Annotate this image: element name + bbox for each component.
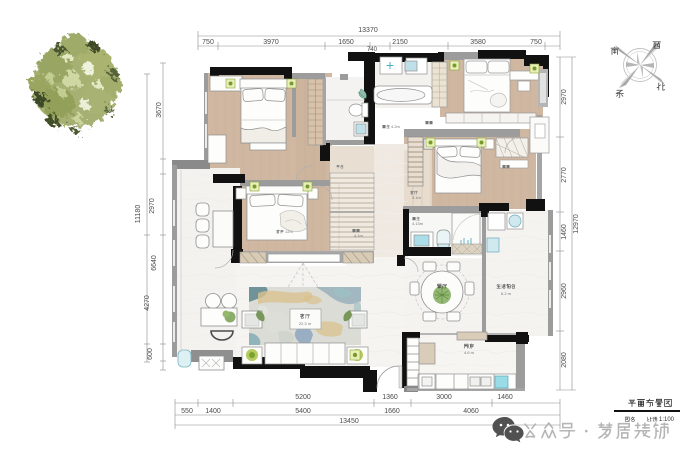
svg-text:3580: 3580 [470, 39, 486, 46]
svg-text:1460: 1460 [561, 224, 568, 240]
svg-text:3970: 3970 [263, 39, 279, 46]
svg-text:3670: 3670 [156, 102, 163, 118]
svg-text:1:100: 1:100 [659, 417, 675, 423]
svg-text:1400: 1400 [205, 408, 221, 415]
svg-text:1360: 1360 [382, 394, 398, 401]
svg-text:1460: 1460 [497, 394, 513, 401]
svg-text:13370: 13370 [358, 27, 378, 34]
svg-text:4.13m: 4.13m [412, 221, 424, 226]
svg-text:6640: 6640 [151, 255, 158, 271]
svg-text:2970: 2970 [561, 89, 568, 105]
svg-text:4270: 4270 [144, 295, 151, 311]
svg-text:2770: 2770 [561, 167, 568, 183]
svg-text:4.1m: 4.1m [354, 233, 364, 238]
svg-text:1660: 1660 [384, 408, 400, 415]
svg-text:750: 750 [530, 39, 542, 46]
svg-text:4.6 m: 4.6 m [464, 350, 475, 355]
svg-text:12m: 12m [285, 229, 293, 234]
svg-text:750: 750 [202, 39, 214, 46]
svg-text:600: 600 [147, 348, 154, 360]
svg-text:4060: 4060 [463, 408, 479, 415]
svg-text:12970: 12970 [573, 214, 580, 234]
svg-text:5400: 5400 [295, 408, 311, 415]
svg-text:2970: 2970 [149, 198, 156, 214]
svg-text:1650: 1650 [338, 39, 354, 46]
svg-text:22.3 m: 22.3 m [299, 321, 312, 326]
svg-text:550: 550 [181, 408, 193, 415]
svg-text:2150: 2150 [392, 39, 408, 46]
svg-text:2080: 2080 [561, 352, 568, 368]
svg-text:13450: 13450 [339, 418, 359, 425]
svg-text:2960: 2960 [561, 283, 568, 299]
svg-text:11180: 11180 [135, 205, 142, 224]
svg-text:740: 740 [367, 47, 378, 53]
svg-text:3000: 3000 [436, 394, 452, 401]
svg-text:3.1m: 3.1m [412, 195, 422, 200]
svg-text:4.2m: 4.2m [391, 124, 401, 129]
svg-text:6.2 m: 6.2 m [501, 291, 512, 296]
svg-text:5200: 5200 [295, 394, 311, 401]
